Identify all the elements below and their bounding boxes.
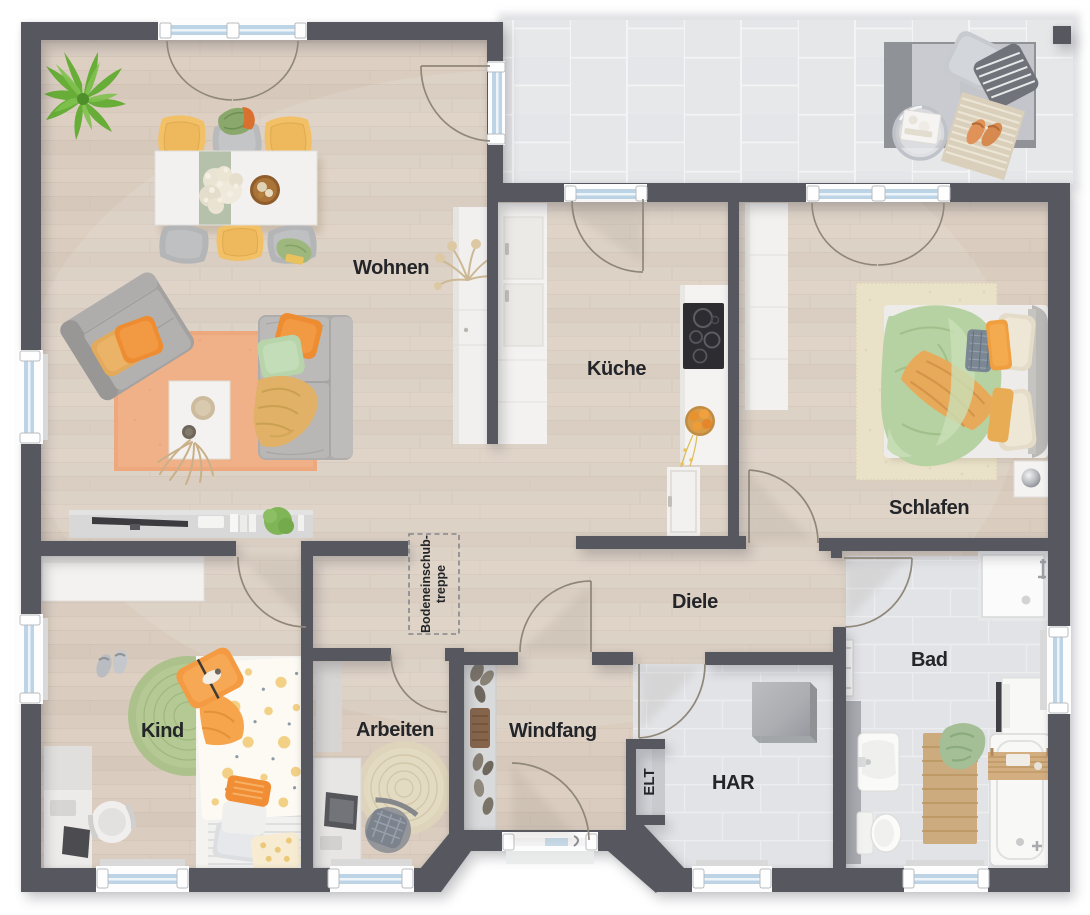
svg-text:Küche: Küche: [587, 358, 646, 380]
svg-text:ELT: ELT: [641, 768, 658, 795]
svg-text:Kind: Kind: [141, 720, 184, 742]
svg-text:Windfang: Windfang: [509, 720, 597, 742]
svg-text:Bodeneinschub-: Bodeneinschub-: [419, 535, 433, 633]
svg-text:Bad: Bad: [911, 649, 948, 671]
svg-text:treppe: treppe: [434, 565, 448, 603]
svg-text:HAR: HAR: [712, 772, 755, 794]
svg-text:Arbeiten: Arbeiten: [356, 719, 434, 741]
svg-text:Wohnen: Wohnen: [353, 257, 429, 279]
svg-text:Schlafen: Schlafen: [889, 497, 969, 519]
svg-text:Diele: Diele: [672, 591, 718, 613]
